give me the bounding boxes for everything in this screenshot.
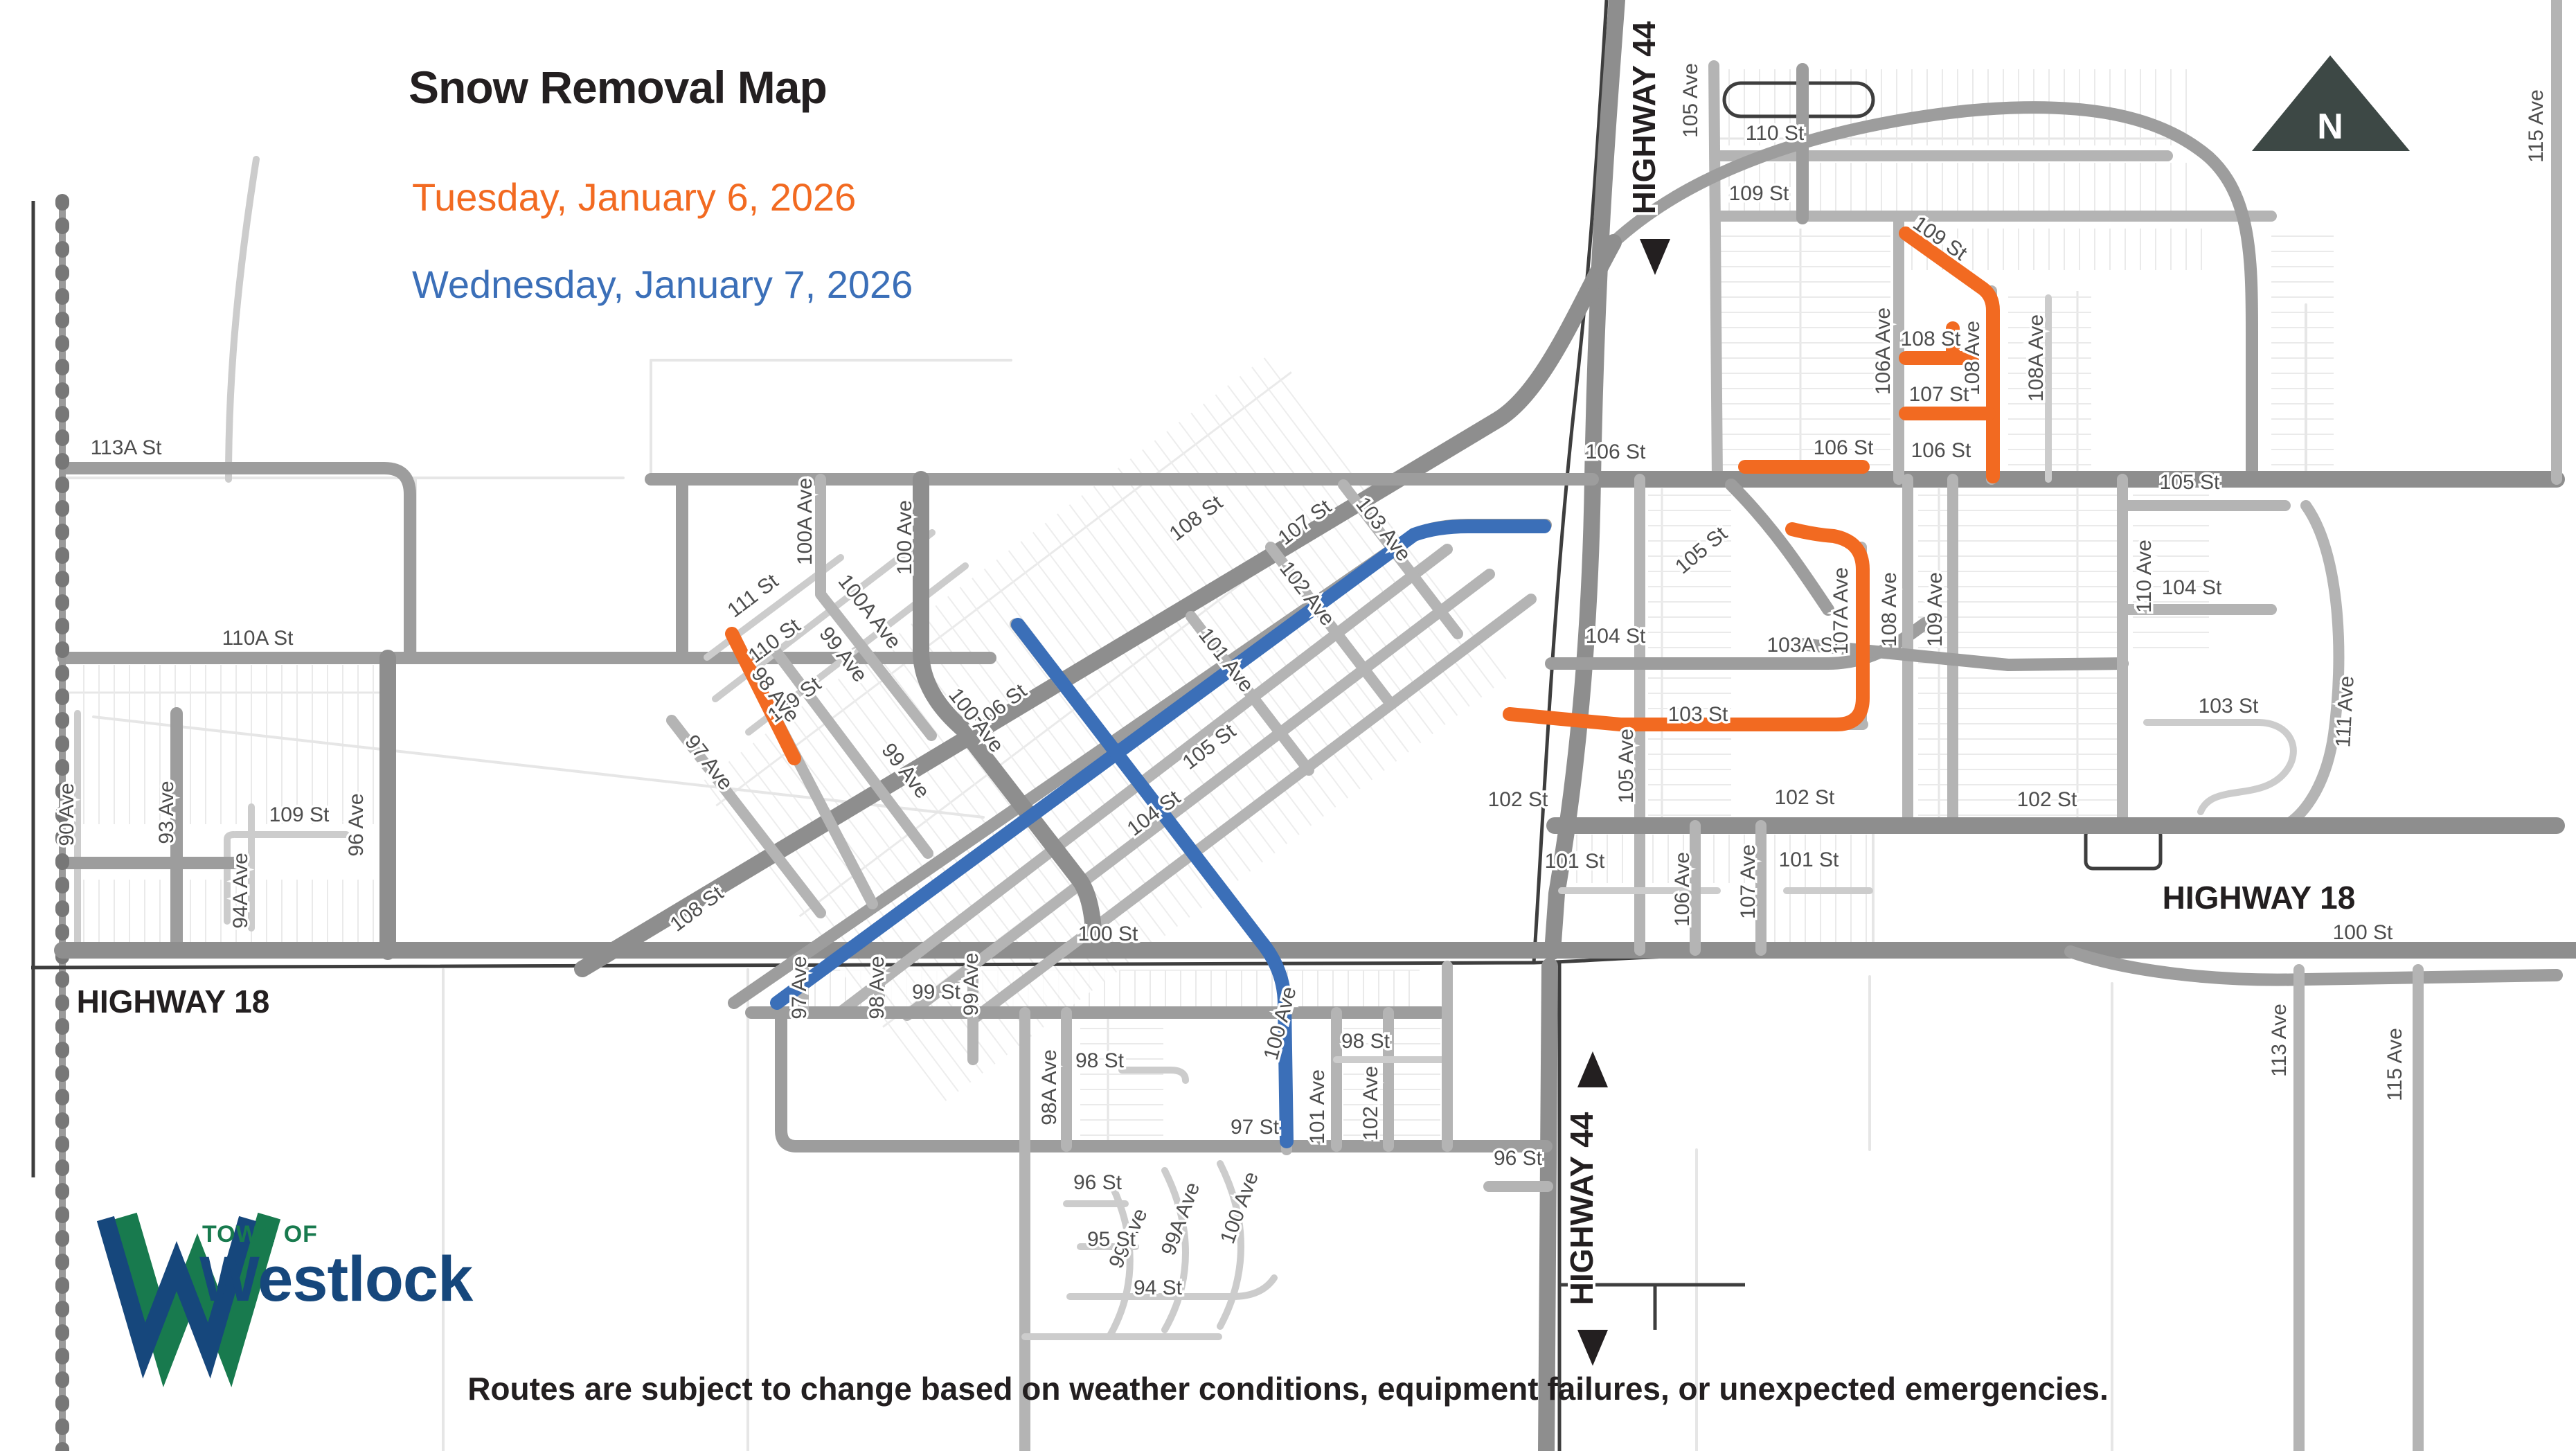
street-label: 99A Ave	[1157, 1180, 1204, 1258]
street-label: 109 Ave	[1924, 572, 1947, 647]
street-label: 107 St	[1909, 383, 1969, 406]
street-label: 99 Ave	[960, 952, 983, 1015]
street-label: 113 Ave	[2268, 1004, 2291, 1077]
logo-westlock: Westlock	[199, 1243, 472, 1316]
street-label: 90 Ave	[55, 783, 78, 846]
street-label: 98 St	[1341, 1030, 1390, 1053]
street-label: 107 Ave	[1737, 844, 1760, 919]
street-label: 97 Ave	[788, 956, 811, 1019]
street-label: 110 St	[1746, 122, 1805, 145]
street-label: 108 Ave	[1878, 572, 1901, 647]
street-label: 95 St	[1087, 1228, 1136, 1251]
street-label: 102 St	[1775, 786, 1835, 809]
town-of-westlock-logo: TOWN OF Westlock	[97, 1216, 720, 1368]
page-title: Snow Removal Map	[409, 61, 827, 114]
street-label: 104 St	[1586, 625, 1646, 648]
street-label: 107A Ave	[1830, 567, 1852, 655]
street-label: 96 Ave	[345, 793, 368, 856]
highway-label: HIGHWAY 44	[1626, 21, 1662, 214]
street-label: 106 Ave	[1671, 852, 1694, 927]
street-label: 115 Ave	[2525, 89, 2548, 163]
street-label: 93 Ave	[155, 781, 178, 844]
street-label: 108A Ave	[2025, 314, 2048, 402]
legend-wednesday: Wednesday, January 7, 2026	[412, 262, 913, 307]
street-label: 98 St	[1075, 1049, 1125, 1072]
street-label: 100A Ave	[794, 478, 816, 565]
street-label: 99 St	[912, 981, 961, 1004]
street-label: 110A St	[222, 627, 294, 650]
street-label: 105 Ave	[1679, 63, 1702, 138]
highway-44-arrow-icon	[1577, 1051, 1608, 1087]
street-label: 108 St	[1901, 328, 1961, 350]
street-label: 104 St	[2162, 576, 2222, 599]
street-label: 102 St	[1488, 788, 1548, 811]
highway-label: HIGHWAY 18	[77, 983, 270, 1020]
street-label: 100 St	[1078, 923, 1138, 945]
street-label: 103 St	[1668, 703, 1728, 726]
street-label: 106 St	[1586, 440, 1646, 463]
street-label: 115 Ave	[2383, 1028, 2406, 1101]
street-label: 100 Ave	[893, 500, 916, 575]
street-label: 105 St	[2160, 471, 2220, 494]
north-arrow-icon: N	[2252, 55, 2410, 151]
street-label: 94A Ave	[229, 853, 252, 929]
street-label: 103 St	[2199, 695, 2259, 718]
street-label: 100 Ave	[1216, 1168, 1263, 1247]
street-label: 110 Ave	[2133, 540, 2156, 613]
svg-text:N: N	[2317, 107, 2343, 147]
street-label: 102 St	[2017, 788, 2077, 811]
street-label: 109 St	[1729, 182, 1789, 205]
highway-44-arrow-icon	[1577, 1330, 1608, 1366]
street-label: 101 Ave	[1306, 1069, 1329, 1144]
street-label: 101 St	[1545, 850, 1605, 873]
street-label: 106A Ave	[1872, 308, 1895, 395]
street-label: 100 St	[2333, 921, 2393, 944]
street-label: 111 St	[723, 569, 782, 622]
street-label: 98 Ave	[866, 956, 888, 1019]
street-label: 97 St	[1231, 1116, 1280, 1139]
street-label: 109 St	[269, 803, 330, 826]
street-label: 98A Ave	[1038, 1049, 1061, 1125]
street-label: 96 St	[1494, 1147, 1543, 1170]
street-label: 111 Ave	[2332, 675, 2358, 748]
snow-removal-map-page: N 105 Ave110 St109 St115 Ave109 St106A A…	[0, 0, 2576, 1451]
street-label: 105 Ave	[1615, 729, 1638, 803]
street-label: 96 St	[1073, 1171, 1122, 1194]
highway-label: HIGHWAY 18	[2163, 880, 2356, 916]
street-label: 106 St	[1814, 436, 1874, 459]
highway-44-arrow-icon	[1640, 239, 1670, 275]
footer-disclaimer: Routes are subject to change based on we…	[0, 1370, 2576, 1407]
street-label: 113A St	[91, 436, 163, 459]
highway-label: HIGHWAY 44	[1564, 1112, 1600, 1305]
legend-tuesday: Tuesday, January 6, 2026	[412, 175, 856, 220]
street-label: 106 St	[1911, 439, 1971, 462]
street-label: 94 St	[1134, 1276, 1183, 1299]
street-label: 102 Ave	[1359, 1066, 1382, 1141]
street-label: 101 St	[1779, 848, 1839, 871]
